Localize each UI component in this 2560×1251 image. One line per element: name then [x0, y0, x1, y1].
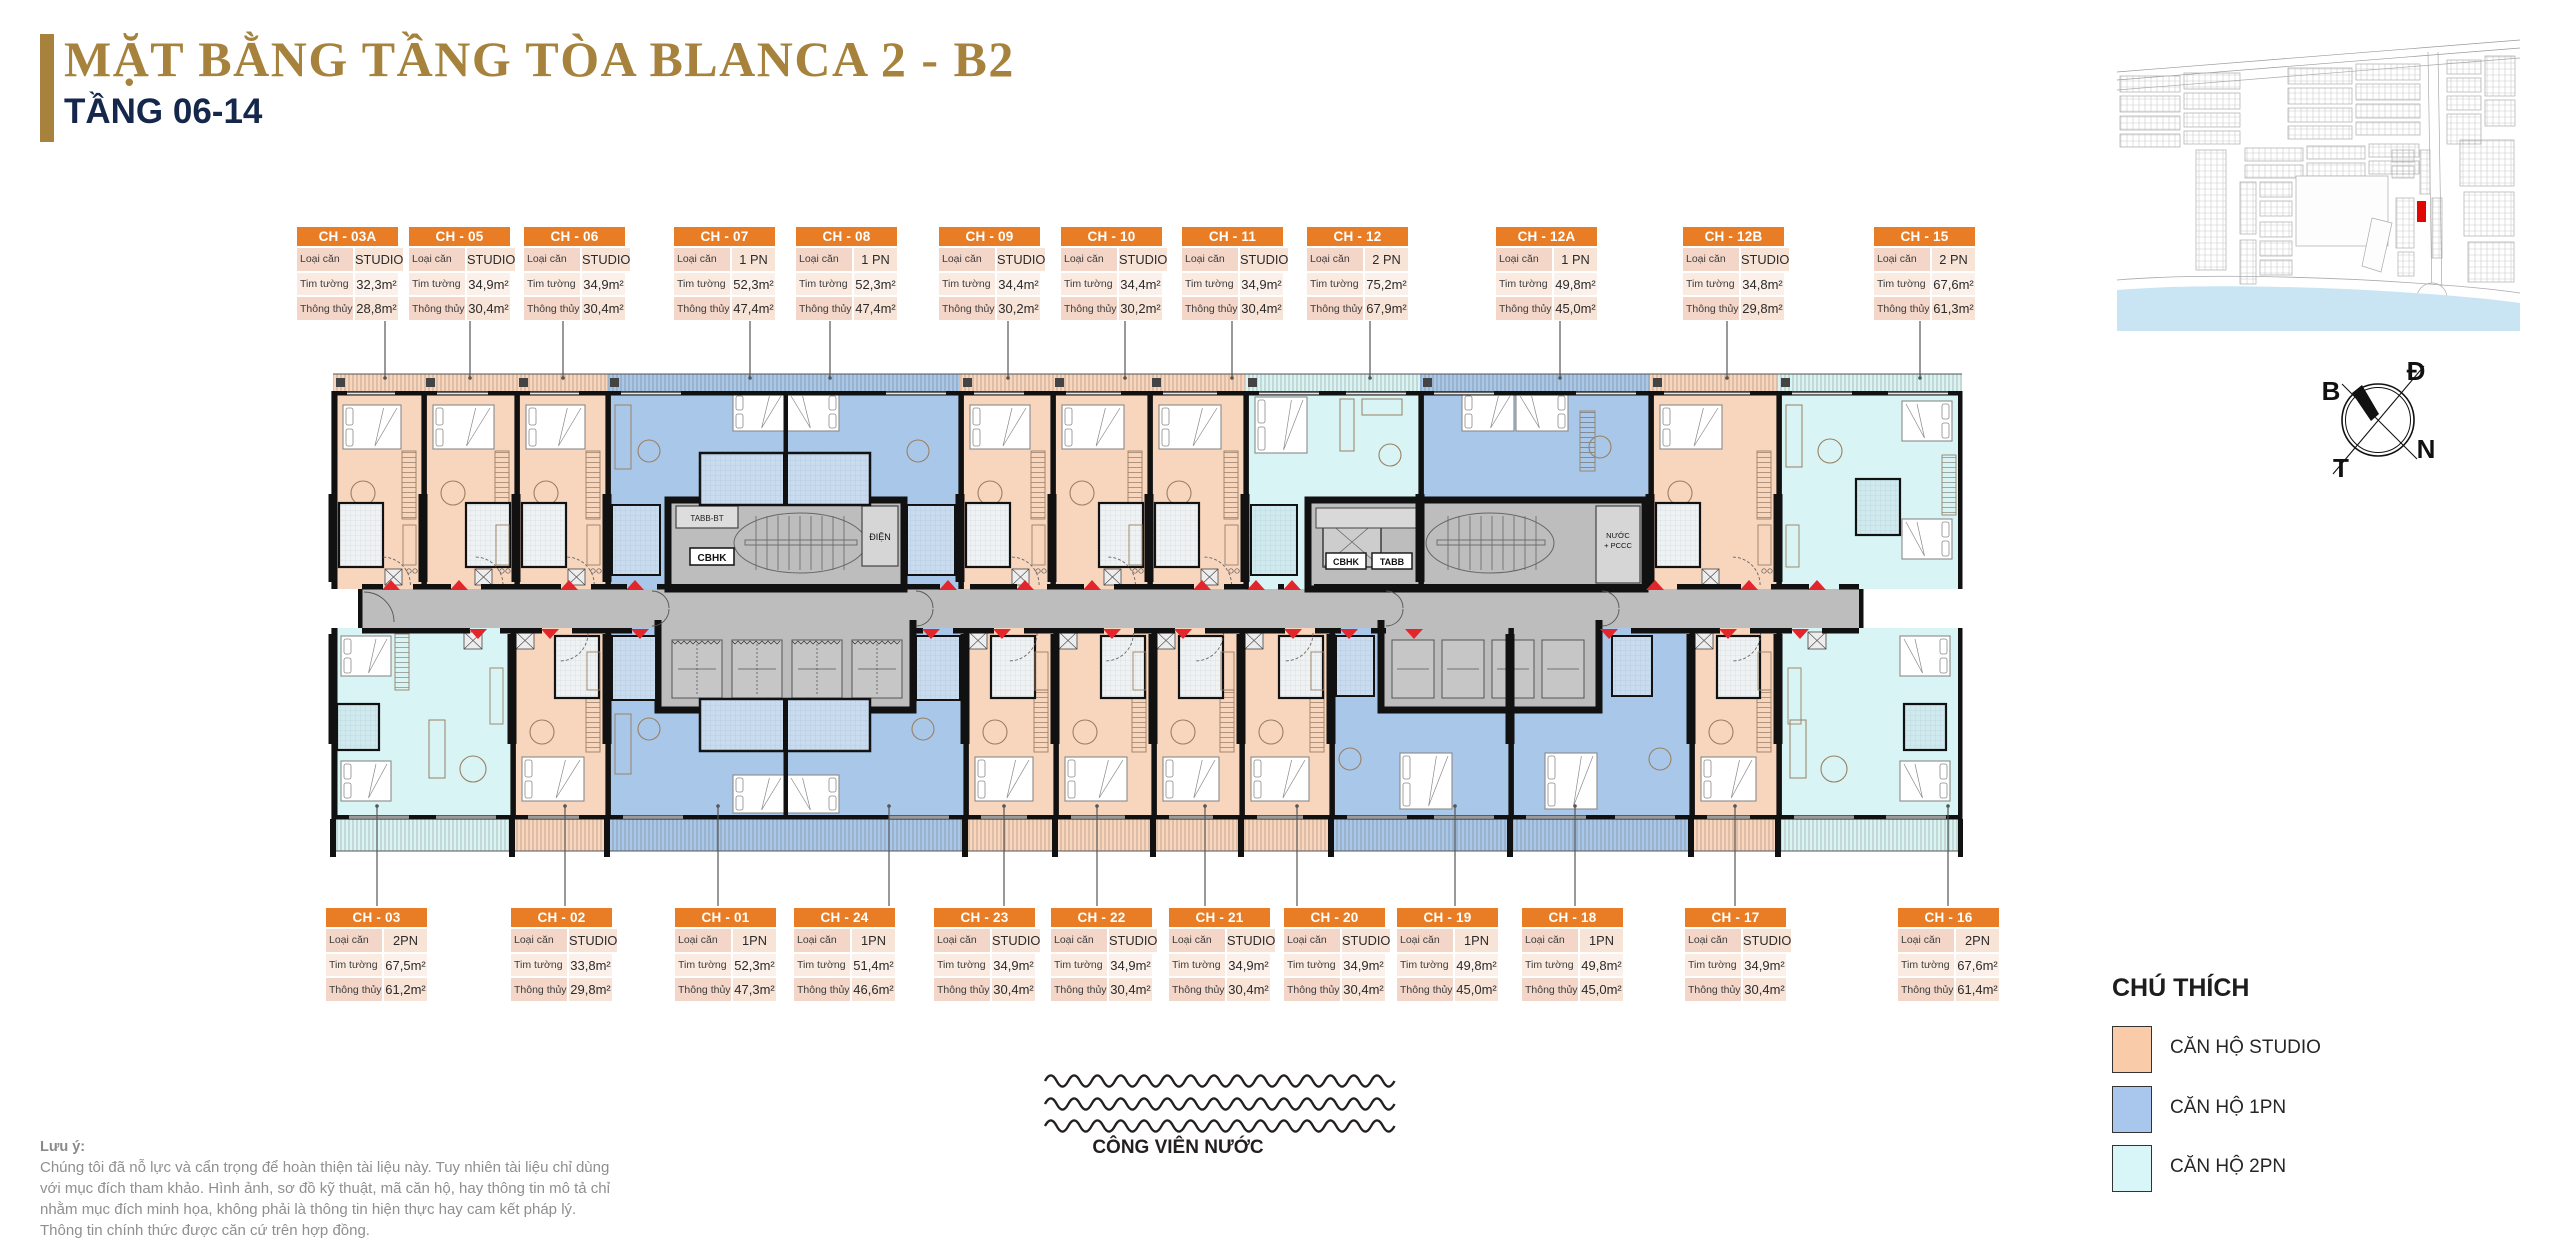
svg-text:CBHK: CBHK — [1333, 557, 1359, 567]
svg-text:CÔNG VIÊN NƯỚC: CÔNG VIÊN NƯỚC — [1092, 1136, 1264, 1158]
svg-text:TABB: TABB — [1380, 557, 1405, 567]
svg-text:Đ: Đ — [2407, 356, 2426, 386]
svg-text:CBHK: CBHK — [698, 553, 728, 564]
svg-text:ĐIỆN: ĐIỆN — [869, 532, 891, 542]
svg-text:NƯỚC: NƯỚC — [1606, 531, 1630, 540]
svg-text:+ PCCC: + PCCC — [1604, 541, 1632, 550]
svg-text:T: T — [2333, 453, 2349, 483]
svg-text:N: N — [2417, 434, 2436, 464]
svg-text:B: B — [2322, 376, 2341, 406]
svg-text:TABB-BT: TABB-BT — [690, 514, 723, 523]
